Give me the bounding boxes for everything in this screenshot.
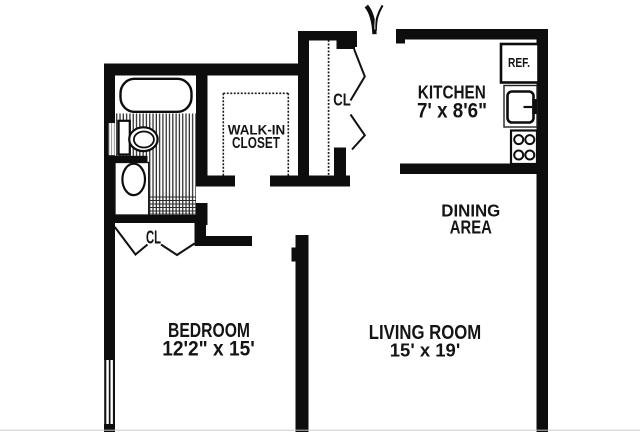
svg-text:CL: CL [146, 227, 161, 248]
svg-text:AREA: AREA [450, 217, 492, 237]
svg-text:REF.: REF. [508, 55, 530, 70]
svg-text:CLOSET: CLOSET [232, 135, 280, 152]
svg-text:12'2" x 15': 12'2" x 15' [162, 337, 255, 361]
svg-text:15' x 19': 15' x 19' [390, 340, 461, 361]
svg-text:7' x 8'6": 7' x 8'6" [417, 100, 487, 123]
svg-text:CL: CL [333, 90, 351, 110]
